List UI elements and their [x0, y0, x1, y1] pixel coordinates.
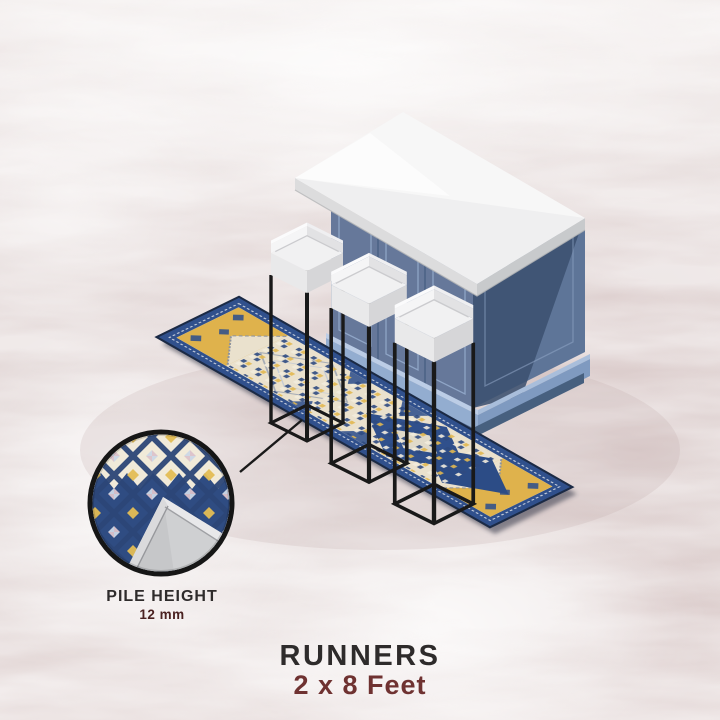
- pile-height-value: 12 mm: [42, 607, 282, 622]
- product-size-label: 2 x 8 Feet: [0, 670, 720, 701]
- product-category-title: RUNNERS: [0, 640, 720, 673]
- pile-height-label: PILE HEIGHT: [42, 588, 282, 606]
- product-infographic: PILE HEIGHT 12 mm RUNNERS 2 x 8 Feet: [0, 0, 720, 720]
